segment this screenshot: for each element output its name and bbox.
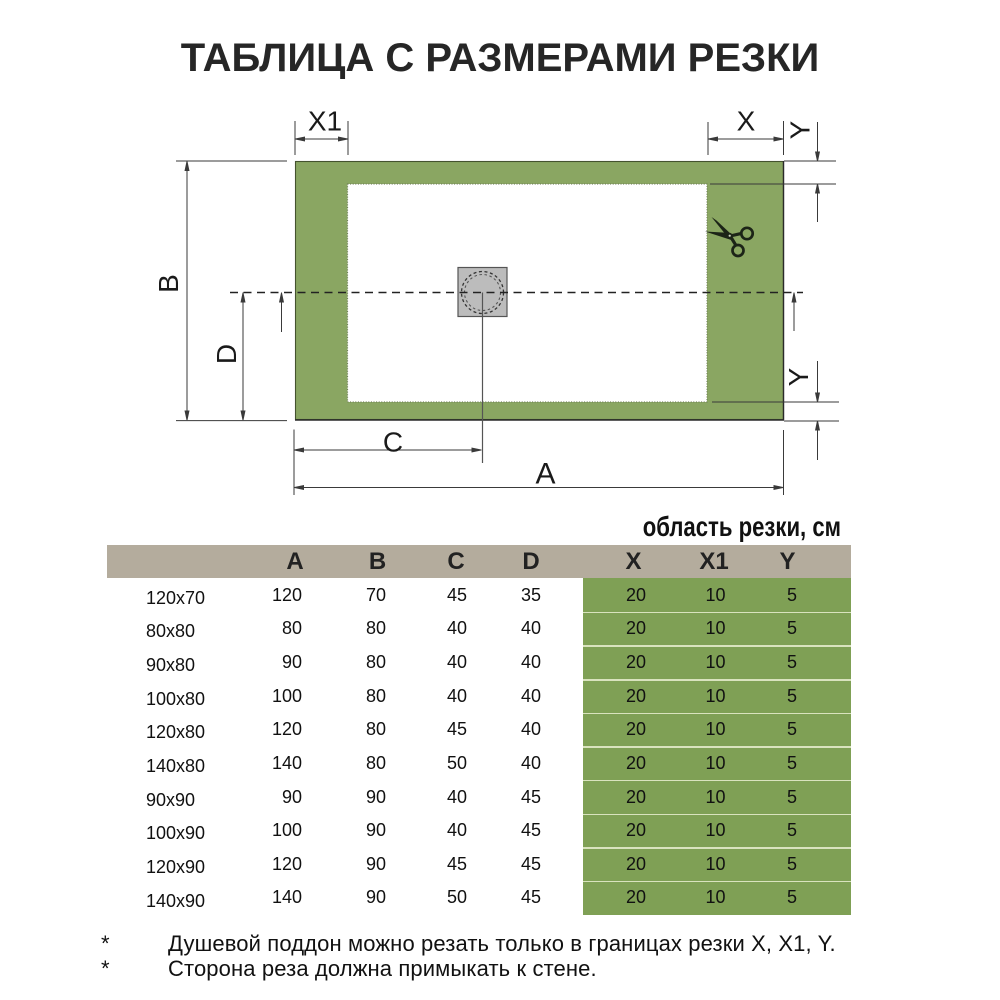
svg-text:C: C	[383, 427, 403, 458]
svg-text:B: B	[153, 274, 184, 293]
svg-text:D: D	[211, 344, 242, 364]
svg-text:X: X	[737, 106, 756, 137]
svg-text:Y: Y	[783, 367, 814, 386]
svg-text:A: A	[535, 458, 555, 491]
svg-text:X1: X1	[308, 106, 342, 137]
svg-text:Y: Y	[784, 120, 815, 139]
